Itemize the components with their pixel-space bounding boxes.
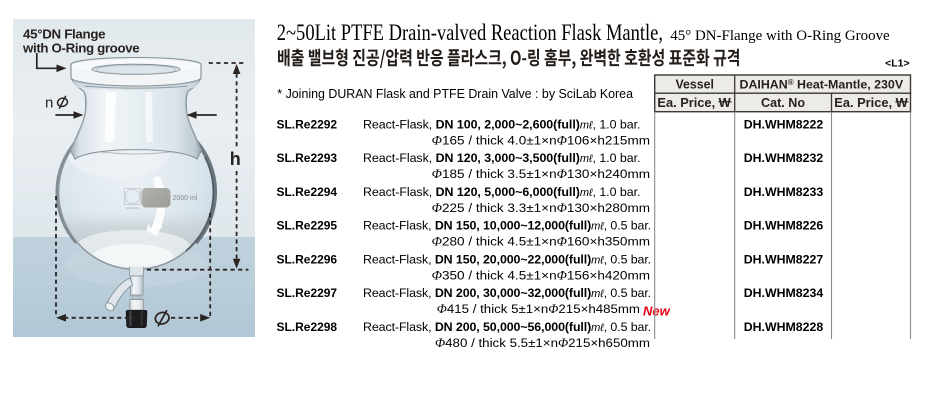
svg-text:Ea. Price, W: Ea. Price, W xyxy=(657,95,731,110)
svg-text:SL.Re2296: SL.Re2296 xyxy=(277,252,338,266)
svg-text:<L1>: <L1> xyxy=(885,58,910,70)
svg-text:React-Flask, DN 100, 2,000~2,6: React-Flask, DN 100, 2,000~2,600(full)mℓ… xyxy=(363,117,640,131)
svg-text:* Joining DURAN Flask and PTFE: * Joining DURAN Flask and PTFE Drain Val… xyxy=(277,87,633,101)
svg-text:Φ350 / thick 4.5±1×nΦ156×h420m: Φ350 / thick 4.5±1×nΦ156×h420mm xyxy=(432,268,650,282)
svg-text:SL.Re2295: SL.Re2295 xyxy=(277,219,338,233)
svg-text:SL.Re2293: SL.Re2293 xyxy=(277,151,338,165)
svg-text:Φ185 / thick 3.5±1×nΦ130×h240m: Φ185 / thick 3.5±1×nΦ130×h240mm xyxy=(432,167,650,181)
svg-text:2000 ml: 2000 ml xyxy=(173,195,198,202)
svg-text:DH.WHM8227: DH.WHM8227 xyxy=(744,252,824,266)
svg-text:React-Flask, DN 200, 30,000~32: React-Flask, DN 200, 30,000~32,000(full)… xyxy=(363,286,651,300)
svg-text:Φ225 / thick 3.3±1×nΦ130×h280m: Φ225 / thick 3.3±1×nΦ130×h280mm xyxy=(432,201,650,215)
svg-text:SL.Re2297: SL.Re2297 xyxy=(277,286,338,300)
svg-text:45°DN Flange: 45°DN Flange xyxy=(23,26,105,41)
svg-text:DH.WHM8226: DH.WHM8226 xyxy=(744,219,824,233)
svg-text:DH.WHM8234: DH.WHM8234 xyxy=(744,286,824,300)
svg-text:DAIHAN® Heat-Mantle, 230V: DAIHAN® Heat-Mantle, 230V xyxy=(740,78,904,92)
svg-text:React-Flask, DN 150, 10,000~12: React-Flask, DN 150, 10,000~12,000(full)… xyxy=(363,219,651,233)
svg-text:Vessel: Vessel xyxy=(675,77,714,92)
svg-text:h: h xyxy=(230,149,241,169)
svg-text:with O-Ring groove: with O-Ring groove xyxy=(22,41,139,56)
svg-text:React-Flask, DN 120, 5,000~6,0: React-Flask, DN 120, 5,000~6,000(full)mℓ… xyxy=(363,185,640,199)
svg-text:Φ280 / thick 4.5±1×nΦ160×h350m: Φ280 / thick 4.5±1×nΦ160×h350mm xyxy=(432,235,650,249)
svg-text:React-Flask, DN 150, 20,000~22: React-Flask, DN 150, 20,000~22,000(full)… xyxy=(363,252,651,266)
svg-text:SL.Re2294: SL.Re2294 xyxy=(277,185,338,199)
svg-text:n: n xyxy=(45,95,53,112)
svg-text:Φ415 / thick 5±1×nΦ215×h485mm: Φ415 / thick 5±1×nΦ215×h485mm xyxy=(437,302,640,316)
svg-text:DH.WHM8232: DH.WHM8232 xyxy=(744,151,824,165)
svg-text:React-Flask, DN 200, 50,000~56: React-Flask, DN 200, 50,000~56,000(full)… xyxy=(363,320,651,334)
svg-text:Cat. No: Cat. No xyxy=(761,95,805,110)
svg-text:Φ165 / thick 4.0±1×nΦ106×h215m: Φ165 / thick 4.0±1×nΦ106×h215mm xyxy=(432,133,650,147)
svg-text:DH.WHM8233: DH.WHM8233 xyxy=(744,185,824,199)
svg-text:45° DN-Flange with O-Ring Groo: 45° DN-Flange with O-Ring Groove xyxy=(670,28,890,44)
svg-text:New: New xyxy=(643,303,671,318)
svg-text:Φ480 / thick 5.5±1×nΦ215×h650m: Φ480 / thick 5.5±1×nΦ215×h650mm xyxy=(435,336,650,350)
svg-text:2~50Lit PTFE Drain-valved Reac: 2~50Lit PTFE Drain-valved Reaction Flask… xyxy=(277,20,663,45)
svg-text:DH.WHM8222: DH.WHM8222 xyxy=(744,117,824,131)
svg-text:SL.Re2292: SL.Re2292 xyxy=(277,117,338,131)
svg-text:DH.WHM8228: DH.WHM8228 xyxy=(744,320,824,334)
svg-text:Ea. Price, W: Ea. Price, W xyxy=(834,95,908,110)
svg-text:React-Flask, DN 120, 3,000~3,5: React-Flask, DN 120, 3,000~3,500(full)mℓ… xyxy=(363,151,640,165)
svg-text:SL.Re2298: SL.Re2298 xyxy=(277,320,338,334)
